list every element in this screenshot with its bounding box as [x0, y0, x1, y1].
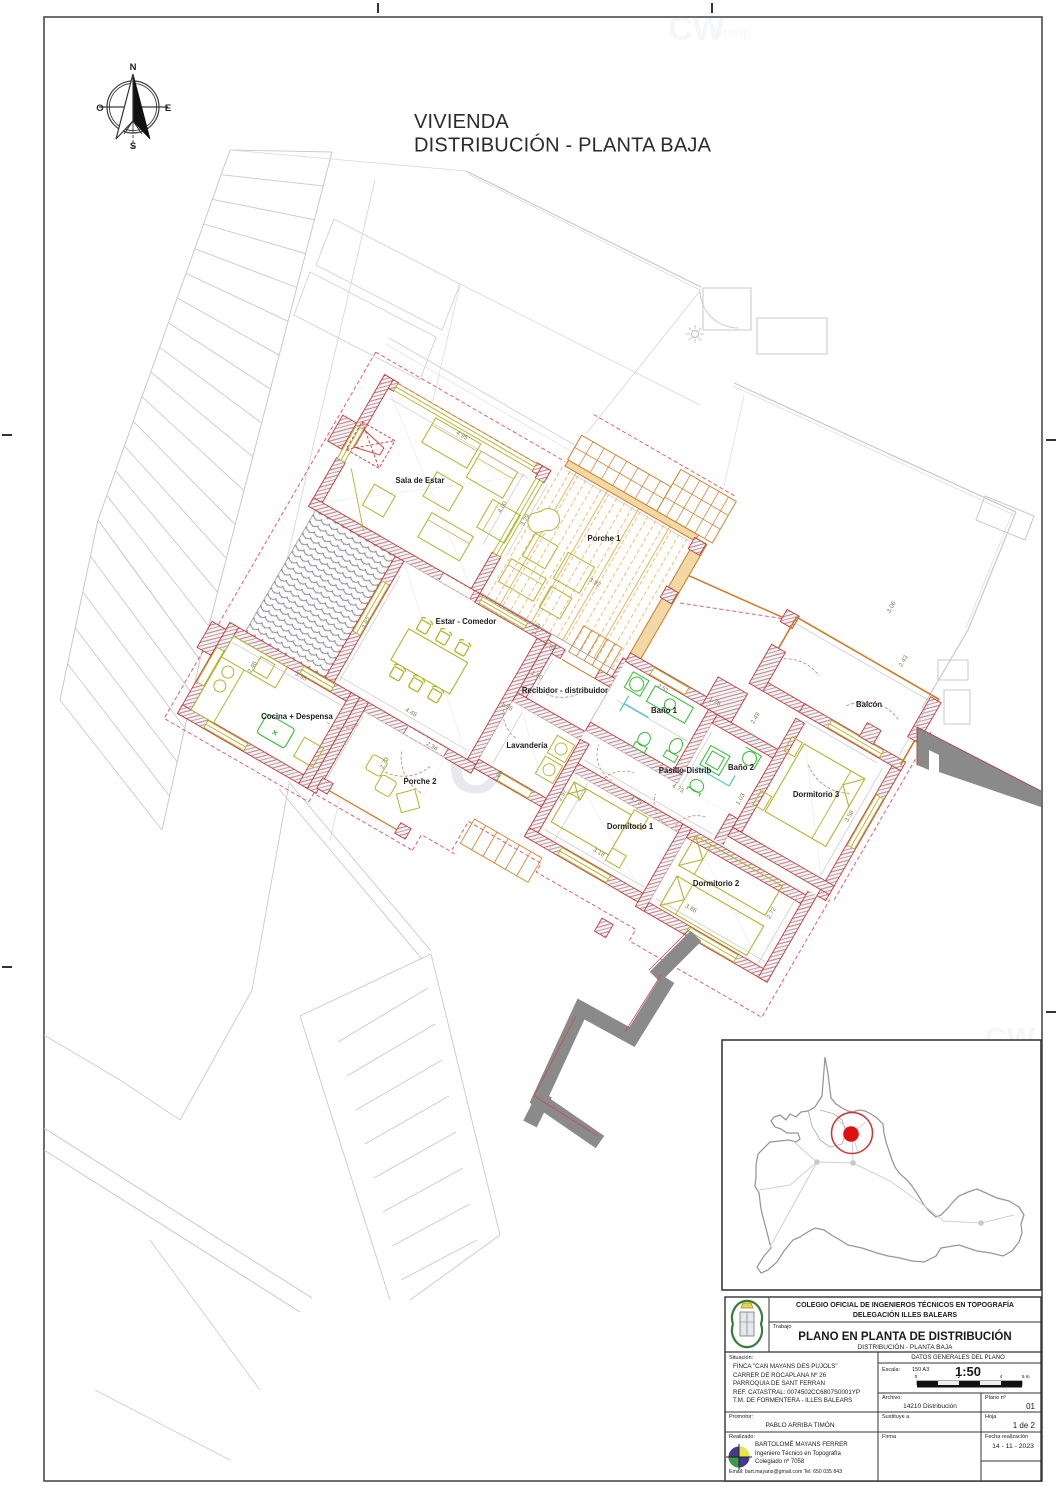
svg-text:PLANO EN PLANTA DE DISTRIBUCIÓ: PLANO EN PLANTA DE DISTRIBUCIÓN [798, 1330, 1011, 1343]
svg-text:Situación:: Situación: [729, 1355, 754, 1361]
svg-text:S: S [130, 141, 136, 152]
svg-text:Archivo:: Archivo: [882, 1395, 902, 1401]
svg-text:Pasillo-Distrib: Pasillo-Distrib [659, 766, 712, 775]
svg-text:Realizado:: Realizado: [729, 1434, 755, 1440]
svg-text:5 m: 5 m [1022, 1374, 1030, 1379]
svg-text:T.M. DE FORMENTERA - ILLES BAL: T.M. DE FORMENTERA - ILLES BALEARS [733, 1397, 852, 1404]
svg-text:PARROQUIA DE SANT FERRAN: PARROQUIA DE SANT FERRAN [733, 1380, 825, 1387]
svg-text:FINCA "CAN MAYANS DES PUJOLS": FINCA "CAN MAYANS DES PUJOLS" [733, 1363, 838, 1370]
svg-text:Group: Group [712, 24, 751, 40]
svg-text:CARRER DE ROCAPLANA Nº 26: CARRER DE ROCAPLANA Nº 26 [733, 1372, 827, 1379]
svg-text:Porche 2: Porche 2 [404, 777, 438, 786]
svg-text:BARTOLOMÉ MAYANS FERRER: BARTOLOMÉ MAYANS FERRER [755, 1441, 848, 1448]
svg-text:Ingeniero Técnico en Topografí: Ingeniero Técnico en Topografía [755, 1451, 842, 1457]
svg-text:1 de 2: 1 de 2 [1013, 1421, 1036, 1430]
svg-text:Plano nº: Plano nº [985, 1394, 1006, 1401]
svg-text:Porche 1: Porche 1 [588, 534, 622, 543]
svg-text:N: N [130, 62, 137, 73]
svg-text:Recibidor - distribuidor: Recibidor - distribuidor [522, 686, 608, 695]
svg-text:Dormitorio 2: Dormitorio 2 [693, 879, 740, 888]
svg-text:14210 Distribución: 14210 Distribución [903, 1403, 957, 1410]
svg-text:Baño 1: Baño 1 [651, 706, 678, 715]
svg-text:E: E [165, 103, 171, 114]
svg-text:DISTRIBUCIÓN - PLANTA BAJA: DISTRIBUCIÓN - PLANTA BAJA [858, 1342, 954, 1351]
svg-text:COLEGIO OFICIAL DE INGENIEROS: COLEGIO OFICIAL DE INGENIEROS TÉCNICOS E… [796, 1300, 1014, 1309]
svg-text:Dormitorio 3: Dormitorio 3 [793, 790, 840, 799]
svg-text:Estar - Comedor: Estar - Comedor [436, 617, 497, 626]
svg-text:Baño 2: Baño 2 [728, 763, 755, 772]
svg-text:Escala:: Escala: [882, 1367, 901, 1373]
svg-text:DATOS GENERALES DEL PLANO: DATOS GENERALES DEL PLANO [911, 1355, 1005, 1361]
svg-text:Colegiado nº 7058: Colegiado nº 7058 [755, 1458, 805, 1465]
svg-text:Balcón: Balcón [856, 700, 882, 709]
svg-text:150 A3: 150 A3 [912, 1367, 929, 1373]
svg-text:DELEGACIÓN ILLES BALEARS: DELEGACIÓN ILLES BALEARS [853, 1310, 958, 1319]
svg-text:Trabajo: Trabajo [773, 1324, 791, 1330]
svg-text:Firma: Firma [882, 1434, 897, 1440]
svg-text:Dormitorio 1: Dormitorio 1 [607, 822, 654, 831]
svg-text:PABLO ARRIBA TIMÓN: PABLO ARRIBA TIMÓN [765, 1420, 834, 1429]
svg-text:REF. CATASTRAL: 0074502CC6807S: REF. CATASTRAL: 0074502CC6807S0001YP [733, 1389, 860, 1396]
svg-text:14 - 11 - 2023: 14 - 11 - 2023 [992, 1443, 1034, 1450]
svg-text:O: O [96, 103, 103, 114]
svg-text:Cocina + Despensa: Cocina + Despensa [261, 712, 333, 721]
svg-text:01: 01 [1026, 1402, 1035, 1411]
svg-text:Promotor:: Promotor: [729, 1414, 754, 1420]
svg-text:Lavandería: Lavandería [506, 741, 548, 750]
svg-text:VIVIENDA: VIVIENDA [414, 111, 509, 133]
svg-text:Hoja: Hoja [985, 1414, 997, 1420]
svg-text:Fecha realización: Fecha realización [985, 1434, 1028, 1440]
svg-text:Sala de Estar: Sala de Estar [396, 476, 445, 485]
svg-text:Email: bart.mayans@gmail.com: Email: bart.mayans@gmail.com Tel: 650 03… [729, 1469, 842, 1475]
svg-text:DISTRIBUCIÓN - PLANTA BAJA: DISTRIBUCIÓN - PLANTA BAJA [414, 134, 712, 157]
svg-text:Sustituye a: Sustituye a [882, 1414, 910, 1420]
